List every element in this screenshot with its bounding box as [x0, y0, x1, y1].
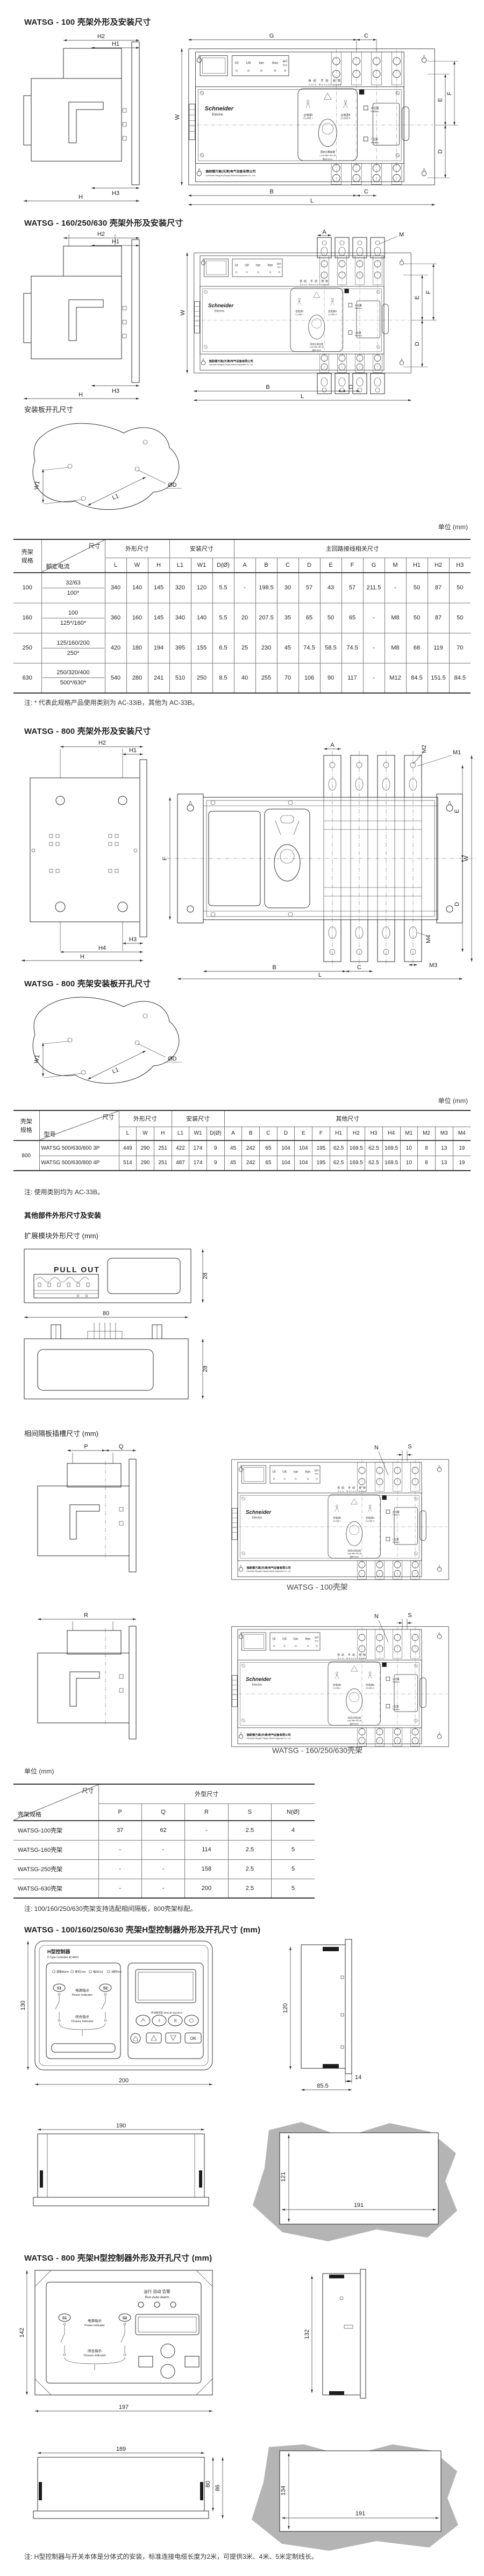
col-header-frame: 壳架规格	[13, 539, 41, 573]
svg-text:I: I	[159, 2018, 160, 2023]
dim-label: H3	[112, 190, 119, 197]
col-header-diagonal: 尺寸 额定电流	[41, 539, 105, 573]
dim-label: B	[272, 964, 276, 971]
table-row: 250 125/160/200250* 420180194 3951556.5 …	[13, 633, 471, 663]
svg-text:报警Alarm: 报警Alarm	[56, 1970, 69, 1974]
dim-label: H4	[98, 945, 106, 951]
section-title-watsg100: WATSG - 100 壳架外形及安装尺寸	[24, 16, 151, 27]
led-row: 报警Alarm 通讯Com 输出Out 消防Fire	[53, 1970, 122, 1974]
drawing-caption: WATSG - 100壳架	[226, 1582, 409, 1592]
dim-label: ØD	[168, 482, 177, 488]
dim-label: F	[425, 290, 432, 294]
drawing-hcontroller-800-bottom: 189 80 86 134 191	[0, 2444, 484, 2551]
module-top-view: PULL OUT	[24, 1249, 191, 1303]
dim-label: F	[446, 91, 453, 95]
power-indicator-cn: 电源指示	[75, 1988, 90, 1993]
power-indicator-en: Power indicator	[84, 2324, 105, 2327]
table-row: WATSG-160壳架 --114 2.55	[13, 1840, 315, 1859]
dim-label: L	[301, 393, 304, 400]
dim-label: 189	[116, 2446, 126, 2452]
side-view	[30, 749, 147, 951]
dim-label: H3	[112, 388, 119, 394]
dim-label: M4	[425, 935, 432, 943]
col-header: L	[105, 558, 126, 573]
drawing-plate-cutout: W1 L1 ØD	[11, 418, 237, 523]
group-header: 外形尺寸	[119, 1110, 172, 1127]
dim-label: M3	[429, 962, 437, 969]
dim-label: L1	[111, 493, 120, 501]
group-header: 外型尺寸	[98, 1784, 315, 1803]
col-header: M	[385, 558, 406, 573]
col-header: E	[320, 558, 341, 573]
dim-label: 200	[119, 2077, 129, 2084]
dim-label: M	[399, 232, 404, 238]
closure-indicator-en: Closure indicator	[83, 2354, 105, 2357]
section-title-other-parts: 其他部件外形尺寸及安装	[24, 1210, 101, 1220]
source2-label: S2	[103, 1987, 108, 1990]
pullout-label: PULL OUT	[54, 1265, 100, 1274]
closure-indicator-cn: 闭合指示	[88, 2348, 102, 2353]
controller-front-view: 运行 自动 告警 Run Auto Alarm S1 S2 电源指示 Power…	[35, 2270, 212, 2395]
dim-label: M2	[421, 745, 428, 753]
dim-label: 197	[119, 2404, 129, 2411]
drawing-partition-160: R N S	[0, 1613, 484, 1744]
col-header: W1	[191, 558, 212, 573]
unit-label: 单位 (mm)	[376, 522, 468, 531]
dim-label: H1	[112, 239, 119, 245]
controller-title-cn: H型控制器	[47, 1949, 70, 1954]
dim-label: H1	[129, 747, 137, 754]
dim-label: R	[84, 1612, 88, 1619]
drawing-hcontroller-100-bottom: 190 121 191	[0, 2122, 484, 2250]
top-busbar-tabs	[317, 237, 385, 258]
svg-text:输出Out: 输出Out	[93, 1970, 103, 1974]
dim-label: C	[357, 964, 361, 971]
section-title-800-plate: WATSG - 800 壳架安装板开孔尺寸	[24, 978, 151, 989]
dim-label: W	[180, 309, 186, 315]
col-header: W	[126, 558, 148, 573]
subsection-title-expansion: 扩展模块外形尺寸 (mm)	[24, 1230, 98, 1240]
drawing-partition-100: P Q N S	[0, 1443, 484, 1582]
section-title-hctrl-100: WATSG - 100/160/250/630 壳架H型控制器外形及开孔尺寸 (…	[24, 1924, 260, 1935]
dim-label: 120	[282, 2003, 289, 2013]
col-header-frame: 壳架规格	[13, 1110, 39, 1141]
dim-label: W	[463, 855, 469, 861]
dim-label: C	[348, 384, 353, 391]
svg-text:消防Fire: 消防Fire	[111, 1970, 122, 1974]
controller-bottom-view	[33, 2134, 209, 2206]
dim-label: 28	[202, 1273, 209, 1279]
section-title-watsg160: WATSG - 160/250/630 壳架外形及安装尺寸	[24, 217, 183, 228]
side-view	[38, 1453, 136, 1572]
controller-bottom-view	[33, 2457, 209, 2519]
controller-title-en: H Type Controller AC400V	[47, 1956, 79, 1959]
unit-label: 单位 (mm)	[376, 1096, 468, 1105]
dim-label: D	[414, 342, 421, 346]
dim-label: G	[269, 33, 274, 39]
dim-label: C	[364, 33, 368, 39]
dim-label: L1	[111, 1066, 120, 1075]
drawing-caption: WATSG - 160/250/630壳架	[226, 1745, 409, 1756]
home-icon	[133, 2037, 138, 2041]
unit-label: 单位 (mm)	[24, 1766, 54, 1776]
dim-label: 14	[355, 2074, 361, 2081]
col-header: C	[277, 558, 298, 573]
dimension-table-800: 壳架规格 尺寸 型号 外形尺寸 安装尺寸 其他尺寸 LWH L1W1D(Ø) A…	[13, 1110, 471, 1171]
controller-front-view: H型控制器 H Type Controller AC400V 报警Alarm 通…	[35, 1941, 212, 2070]
closure-indicator-cn: 闭合指示	[75, 2014, 90, 2019]
group-header: 其他尺寸	[224, 1110, 471, 1127]
dim-label: A	[322, 229, 326, 235]
drawing-watsg100-outline: H2 H1 H3 H W G C E F D B C L	[0, 33, 484, 211]
dim-label: 86	[215, 2485, 221, 2491]
section-title-watsg800: WATSG - 800 壳架外形及安装尺寸	[24, 725, 151, 737]
section-title-hctrl-800: WATSG - 800 壳架H型控制器外形及开孔尺寸 (mm)	[24, 2252, 212, 2263]
up-arrow-icon	[151, 2036, 156, 2040]
col-header: H1	[406, 558, 428, 573]
front-view	[167, 751, 476, 966]
table-note: 注: 100/160/250/630壳架支持选配相间隔板，800壳架标配。	[24, 1904, 197, 1913]
svg-text:II: II	[174, 2018, 176, 2023]
col-header: L1	[169, 558, 191, 573]
dim-label: 134	[280, 2486, 287, 2495]
group-header: 外形尺寸	[105, 539, 169, 558]
dim-label: A	[330, 742, 334, 748]
source1-label: S1	[62, 2317, 67, 2320]
col-header: H3	[449, 558, 471, 573]
button-row-nav: OK	[131, 2033, 201, 2043]
col-header: F	[341, 558, 363, 573]
manual-page: WATSG - 100 壳架外形及安装尺寸 H2 H1 H3 H W G C E…	[0, 0, 484, 2576]
dim-label: Q	[119, 1444, 124, 1450]
drawing-watsg800-outline: H2 H1 H3 H4 H	[0, 740, 484, 983]
table-row: 630 250/320/400500*/630* 540280241 51025…	[13, 663, 471, 693]
col-header: B	[255, 558, 277, 573]
dim-label: 28	[202, 1366, 209, 1372]
footer-note: 注: H型控制器与开关本体是分体式的安装，标准连接电缆长度为2米，可提供3米、4…	[24, 2552, 318, 2561]
svg-text:通讯Com: 通讯Com	[75, 1970, 86, 1974]
manual-zone-label: 手动操作区 Manual operation	[151, 2011, 183, 2015]
dim-label: D	[454, 902, 460, 906]
dim-label: H2	[97, 231, 105, 237]
dim-label: 85.5	[317, 2083, 328, 2089]
dim-label: M1	[453, 749, 461, 756]
col-header-diagonal: 尺寸 型号	[39, 1110, 119, 1141]
dim-label: S	[408, 1612, 411, 1619]
drawing-hcontroller-100: H型控制器 H Type Controller AC400V 报警Alarm 通…	[0, 1938, 484, 2121]
dim-label: B	[266, 384, 269, 391]
power-indicator-en: Power Indicator	[72, 1994, 92, 1997]
closure-indicator-en: Closure Indicator	[71, 2020, 94, 2023]
group-header: 安装尺寸	[172, 1110, 224, 1127]
table-row: WATSG-630壳架 --200 2.55	[13, 1879, 315, 1898]
drawing-expansion-module: PULL OUT 28 80 28	[13, 1246, 245, 1405]
col-header: H	[148, 558, 169, 573]
dim-label: H1	[112, 41, 119, 47]
dim-label: E	[437, 98, 444, 102]
dim-label: 191	[355, 2510, 365, 2517]
dim-label: 132	[304, 2329, 310, 2339]
led-labels-cn: 运行 自动 告警	[144, 2289, 170, 2294]
table-row: 100 32/63100* 340140145 3201205.5 -198.5…	[13, 573, 471, 603]
partition-dimension-table: 尺寸 壳架规格 外型尺寸 PQR SN(Ø) WATSG-100壳架 3762-…	[13, 1784, 315, 1899]
power-indicator-cn: 电源指示	[88, 2318, 102, 2323]
table-row: WATSG 500/630/800 4P 514290251 4871749 4…	[13, 1156, 471, 1171]
dim-label: W1	[33, 480, 41, 490]
controller-side-view	[323, 2269, 366, 2398]
dim-label: 142	[19, 2328, 25, 2337]
side-view	[24, 234, 139, 383]
dim-label: H2	[98, 740, 106, 746]
led-labels-en: Run Auto Alarm	[145, 2296, 169, 2299]
dim-label: H2	[97, 33, 105, 40]
dim-label: F	[162, 856, 168, 860]
dim-label: L	[310, 198, 314, 204]
down-arrow-icon	[170, 2036, 176, 2040]
dim-label: C	[364, 189, 368, 195]
dim-label: 130	[20, 2001, 26, 2010]
dim-label: 80	[205, 2481, 211, 2487]
source1-label: S1	[57, 1987, 62, 1990]
dim-label: H3	[129, 936, 137, 943]
dim-label: E	[454, 809, 460, 813]
subsection-title-partition: 相间隔板插槽尺寸 (mm)	[24, 1428, 98, 1438]
col-header-diagonal: 尺寸 壳架规格	[13, 1784, 98, 1821]
controller-side-view	[301, 1939, 352, 2074]
table-row: 160 100125*/160* 360160145 3401405.5 202…	[13, 603, 471, 633]
dim-label: H	[79, 392, 83, 398]
col-header: G	[363, 558, 385, 573]
drawing-hcontroller-800: 运行 自动 告警 Run Auto Alarm S1 S2 电源指示 Power…	[0, 2266, 484, 2443]
dim-label: W	[174, 114, 181, 120]
table-note: 注: 使用类别均为 AC-33B。	[24, 1187, 104, 1196]
side-view	[38, 1621, 136, 1739]
dim-label: 121	[280, 2172, 287, 2182]
drawing-watsg160-outline: H2 H1 H3 H A M W E F D	[0, 231, 484, 404]
dim-label: H	[79, 194, 83, 200]
table-note: 注: * 代表此规格产品使用类别为 AC-33iB，其他为 AC-33B。	[24, 698, 198, 707]
stop-icon	[190, 2019, 194, 2023]
section-title-plate-holes: 安装板开孔尺寸	[24, 404, 73, 414]
dim-label: S	[408, 1444, 411, 1450]
dim-label: ØD	[168, 1056, 177, 1062]
dim-label: P	[84, 1444, 88, 1450]
side-view	[24, 42, 139, 185]
panel-cutout: 121 191	[253, 2122, 457, 2241]
dimension-table-100-630: 壳架规格 尺寸 额定电流 外形尺寸 安装尺寸 主回路接线相关尺寸 LW HL1 …	[13, 539, 471, 694]
dim-label: N	[374, 1445, 379, 1451]
bottom-busbar-tabs	[317, 373, 385, 394]
svg-text:OK: OK	[190, 2036, 196, 2041]
dim-label: 191	[354, 2202, 364, 2209]
col-header: A	[234, 558, 255, 573]
module-front-view	[24, 1323, 188, 1399]
col-header: D(Ø)	[212, 558, 234, 573]
hand-icon	[141, 2018, 145, 2022]
dim-label: E	[414, 295, 421, 299]
group-header: 安装尺寸	[169, 539, 234, 558]
dim-label: B	[269, 189, 273, 195]
group-header: 主回路接线相关尺寸	[234, 539, 471, 558]
dim-label: W1	[33, 1054, 41, 1064]
drawing-plate-cutout-800: W1 L1 ØD	[11, 992, 237, 1096]
panel-cutout: 134 191	[252, 2444, 458, 2551]
dim-label: D	[437, 149, 444, 154]
dim-label: 80	[103, 1310, 109, 1317]
table-row: 800 WATSG 500/630/800 3P 449290251 42217…	[13, 1141, 471, 1156]
dim-label: L	[318, 972, 322, 978]
table-row: WATSG-250壳架 --158 2.55	[13, 1859, 315, 1879]
col-header: H2	[428, 558, 449, 573]
table-row: WATSG-100壳架 3762- 2.54	[13, 1821, 315, 1840]
dim-label: 190	[116, 2123, 126, 2129]
dim-label: N	[374, 1613, 379, 1620]
col-header: D	[298, 558, 320, 573]
source2-label: S2	[123, 2317, 127, 2320]
button-row-main: I II	[136, 2015, 198, 2026]
dim-label: H	[80, 954, 84, 960]
